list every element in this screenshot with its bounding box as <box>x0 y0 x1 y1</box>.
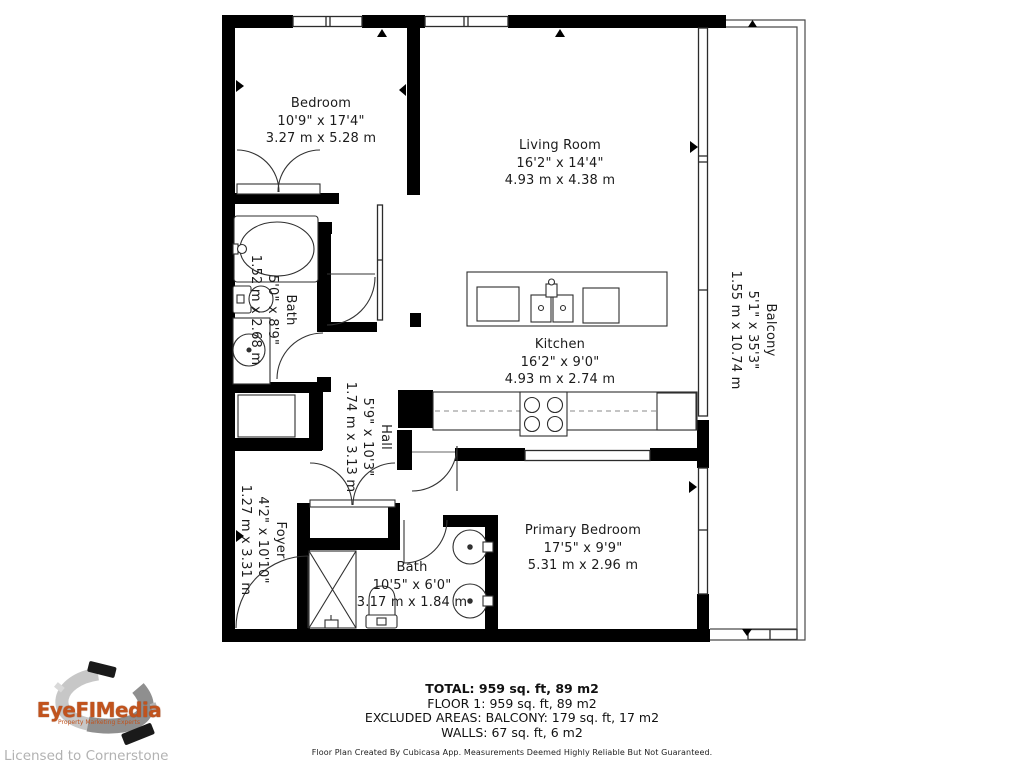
total-area: TOTAL: 959 sq. ft, 89 m2 <box>212 682 812 697</box>
room-dim-metric: 5.31 m x 2.96 m <box>483 557 683 575</box>
room-dim-imperial: 5'0" x 8'9" <box>264 245 282 375</box>
room-dim-imperial: 17'5" x 9'9" <box>483 540 683 558</box>
den-door <box>327 274 375 325</box>
bath2-label: Bath 10'5" x 6'0" 3.17 m x 1.84 m <box>322 559 502 612</box>
room-dim-imperial: 16'2" x 9'0" <box>460 354 660 372</box>
area-summary: TOTAL: 959 sq. ft, 89 m2 FLOOR 1: 959 sq… <box>212 682 812 757</box>
room-dim-imperial: 4'2" x 10'10" <box>254 465 272 615</box>
primary-bedroom-label: Primary Bedroom 17'5" x 9'9" 5.31 m x 2.… <box>483 522 683 575</box>
room-dim-metric: 1.55 m x 10.74 m <box>727 250 745 410</box>
logo-tagline: Property Marketing Experts <box>26 719 172 726</box>
balcony-end-window <box>748 630 797 640</box>
room-name: Balcony <box>762 250 780 410</box>
room-name: Kitchen <box>460 336 660 354</box>
floor-area: FLOOR 1: 959 sq. ft, 89 m2 <box>212 697 812 712</box>
bath2-door <box>404 520 447 563</box>
room-dim-metric: 1.52 m x 2.68 m <box>247 245 265 375</box>
license-text: Licensed to Cornerstone <box>4 748 168 764</box>
room-dim-imperial: 5'1" x 35'3" <box>744 250 762 410</box>
living-room-top-window <box>425 17 508 27</box>
room-dim-metric: 4.93 m x 2.74 m <box>460 371 660 389</box>
glass-partition <box>378 205 383 320</box>
living-room-window-wall <box>699 28 708 416</box>
floor-plan-page: Bedroom 10'9" x 17'4" 3.27 m x 5.28 m Li… <box>0 0 1024 768</box>
fridge <box>657 393 696 430</box>
room-dim-metric: 3.17 m x 1.84 m <box>322 594 502 612</box>
kitchen-island <box>467 272 667 326</box>
room-name: Primary Bedroom <box>483 522 683 540</box>
disclaimer: Floor Plan Created By Cubicasa App. Meas… <box>212 748 812 757</box>
kitchen-primary-glazed-wall <box>525 451 650 461</box>
kitchen-label: Kitchen 16'2" x 9'0" 4.93 m x 2.74 m <box>460 336 660 389</box>
kitchen-wall-block <box>398 390 433 428</box>
balcony-label: Balcony 5'1" x 35'3" 1.55 m x 10.74 m <box>725 250 779 410</box>
room-dim-metric: 3.27 m x 5.28 m <box>231 130 411 148</box>
room-dim-metric: 1.74 m x 3.13 m <box>342 372 360 502</box>
hall-label: Hall 5'9" x 10'3" 1.74 m x 3.13 m <box>340 372 394 502</box>
room-name: Bath <box>322 559 502 577</box>
primary-bedroom-door <box>412 446 457 491</box>
room-dim-metric: 4.93 m x 4.38 m <box>460 172 660 190</box>
bedroom-label: Bedroom 10'9" x 17'4" 3.27 m x 5.28 m <box>231 95 411 148</box>
excluded-areas: EXCLUDED AREAS: BALCONY: 179 sq. ft, 17 … <box>212 711 812 726</box>
room-dim-imperial: 5'9" x 10'3" <box>359 372 377 502</box>
room-name: Bath <box>282 245 300 375</box>
room-name: Foyer <box>272 465 290 615</box>
bath-label: Bath 5'0" x 8'9" 1.52 m x 2.68 m <box>245 245 299 375</box>
walls-area: WALLS: 67 sq. ft, 6 m2 <box>212 726 812 741</box>
stove <box>520 392 567 436</box>
living-room-label: Living Room 16'2" x 14'4" 4.93 m x 4.38 … <box>460 137 660 190</box>
room-dim-metric: 1.27 m x 3.31 m <box>237 465 255 615</box>
storage-box <box>238 395 295 437</box>
bedroom-window <box>293 17 362 27</box>
foyer-label: Foyer 4'2" x 10'10" 1.27 m x 3.31 m <box>235 465 289 615</box>
room-name: Bedroom <box>231 95 411 113</box>
room-name: Living Room <box>460 137 660 155</box>
room-dim-imperial: 16'2" x 14'4" <box>460 155 660 173</box>
room-dim-imperial: 10'9" x 17'4" <box>231 113 411 131</box>
bedroom-closet-doors <box>237 150 320 194</box>
primary-bedroom-window <box>699 468 708 594</box>
room-name: Hall <box>377 372 395 502</box>
room-dim-imperial: 10'5" x 6'0" <box>322 577 502 595</box>
